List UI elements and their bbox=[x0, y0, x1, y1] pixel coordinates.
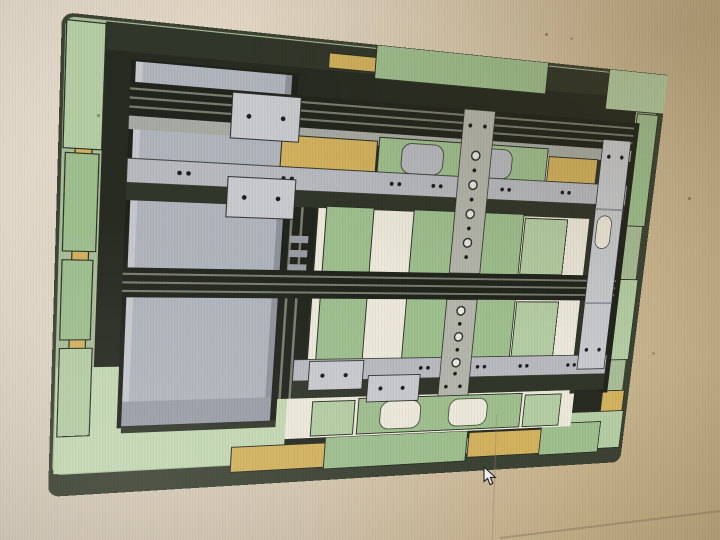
photo-speck bbox=[652, 352, 655, 355]
photo-stage bbox=[0, 0, 720, 540]
photo-speck bbox=[570, 37, 573, 40]
mouse-cursor-arrow bbox=[483, 466, 497, 487]
photo-speck bbox=[545, 33, 548, 36]
cad-model-pallet-fixture bbox=[48, 12, 668, 497]
bottom-edge-line bbox=[500, 509, 720, 538]
photo-speck bbox=[688, 197, 691, 200]
plate-top-left-2 bbox=[226, 177, 296, 220]
plate-bottom-left-2 bbox=[366, 374, 420, 402]
plate-bottom-left-1 bbox=[308, 361, 364, 391]
row1-yellow-right bbox=[547, 157, 598, 184]
top-right-corner-block bbox=[605, 69, 668, 115]
plate-top-left-1 bbox=[230, 92, 301, 142]
cad-viewport[interactable] bbox=[48, 12, 668, 497]
